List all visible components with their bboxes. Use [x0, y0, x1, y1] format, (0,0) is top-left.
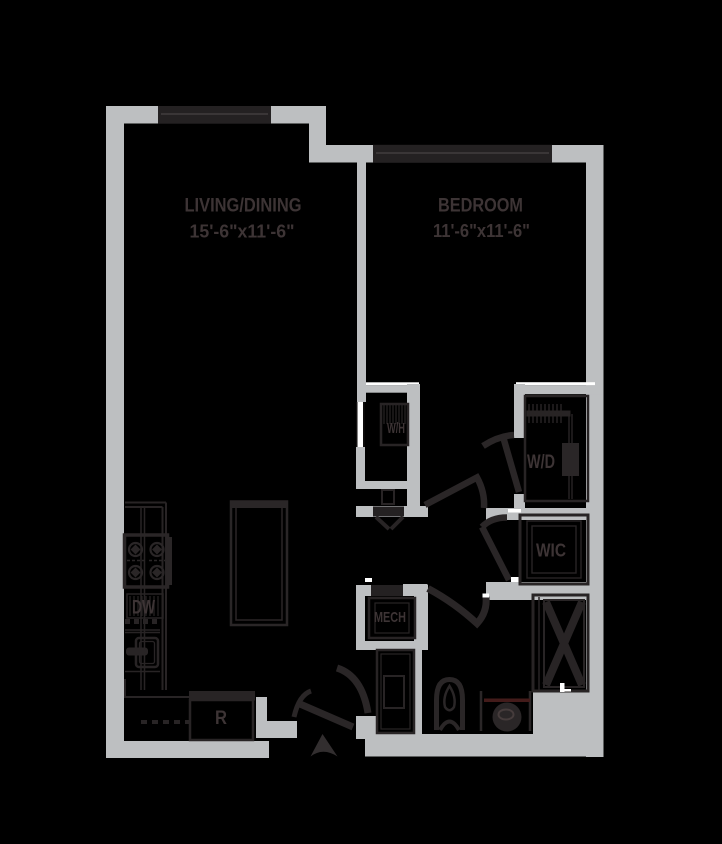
svg-text:R: R — [215, 708, 227, 729]
svg-text:DW: DW — [132, 598, 155, 619]
svg-text:BEDROOM: BEDROOM — [438, 195, 523, 217]
svg-text:11'-6"x11'-6": 11'-6"x11'-6" — [433, 221, 530, 241]
svg-text:MECH: MECH — [374, 609, 406, 626]
svg-text:WIC: WIC — [536, 541, 566, 561]
svg-text:W/H: W/H — [387, 420, 405, 437]
svg-text:W/D: W/D — [527, 452, 555, 473]
svg-text:LIVING/DINING: LIVING/DINING — [185, 195, 302, 217]
svg-text:15'-6"x11'-6": 15'-6"x11'-6" — [190, 222, 295, 242]
